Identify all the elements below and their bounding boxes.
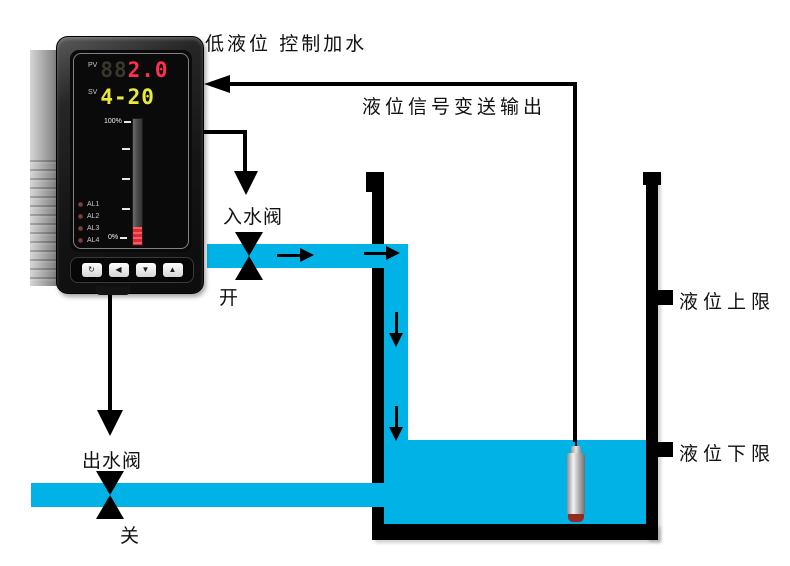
controller-bottom-tab <box>96 286 130 295</box>
upper-limit-marker <box>656 290 673 305</box>
alarm-led-row: AL4 <box>78 234 99 246</box>
pv-ghost-digits: 88 <box>100 60 127 81</box>
sv-label: SV <box>88 89 97 96</box>
level-control-diagram: 低液位 控制加水 液位信号变送输出 入水阀 开 出水阀 关 液位上限 液位下限 … <box>0 0 790 566</box>
inlet-flow-arrow-line <box>277 254 301 257</box>
bargraph-track <box>132 118 143 246</box>
lower-limit-label: 液位下限 <box>679 439 775 466</box>
bar-tick-50 <box>122 178 130 180</box>
inlet-valve-icon-top <box>235 232 263 256</box>
inlet-flow-arrow2-line <box>364 252 387 255</box>
inlet-flow-arrow-icon <box>300 248 314 262</box>
bar-bottom-label: 0% <box>108 234 118 241</box>
level-sensor-body <box>567 453 585 515</box>
lower-limit-marker <box>656 442 673 457</box>
level-controller: PV 88 2.0 SV 4-20 100% <box>30 36 204 298</box>
alarm-led-row: AL2 <box>78 210 99 222</box>
outlet-valve-icon-top <box>96 471 124 495</box>
outlet-valve-state: 关 <box>120 521 142 548</box>
bar-bottom-tick <box>120 237 127 239</box>
bar-tick-25 <box>122 208 130 210</box>
outlet-control-arrow-icon <box>97 410 123 436</box>
drop-flow-arrow2-line <box>395 406 398 428</box>
controller-face: PV 88 2.0 SV 4-20 100% <box>70 50 192 252</box>
level-sensor-tip <box>568 514 584 522</box>
alarm-led-row: AL1 <box>78 198 99 210</box>
inlet-valve-label: 入水阀 <box>223 202 283 229</box>
al2-led-icon <box>78 214 83 219</box>
al4-led-icon <box>78 238 83 243</box>
controller-bezel: PV 88 2.0 SV 4-20 100% <box>56 36 204 294</box>
tank-right-wall <box>646 172 658 540</box>
signal-line-horizontal <box>226 82 575 86</box>
pv-label: PV <box>88 62 97 69</box>
inlet-flow-arrow2-icon <box>386 246 400 260</box>
up-button: ▲ <box>163 263 183 277</box>
signal-line-vertical <box>573 82 577 442</box>
inlet-valve-icon-bottom <box>235 256 263 280</box>
bar-top-tick <box>124 121 131 123</box>
tank-left-wall-lower <box>372 507 384 524</box>
down-button: ▼ <box>136 263 156 277</box>
al3-led-icon <box>78 226 83 231</box>
drop-flow-arrow1-icon <box>389 333 403 347</box>
bar-top-label-row: 100% <box>104 118 131 125</box>
sv-display: SV 4-20 <box>88 87 155 108</box>
bar-bottom-label-row: 0% <box>108 234 127 241</box>
diagram-title: 低液位 控制加水 <box>205 29 367 56</box>
inlet-control-line-vertical <box>243 130 247 172</box>
al1-led-icon <box>78 202 83 207</box>
outlet-control-line <box>108 293 112 411</box>
tank-left-wall-upper <box>372 172 384 244</box>
al2-label: AL2 <box>87 213 99 220</box>
cycle-button: ↻ <box>82 263 102 277</box>
drop-flow-arrow2-icon <box>389 427 403 441</box>
tank-water <box>384 440 646 524</box>
bar-top-label: 100% <box>104 118 122 125</box>
pv-display: PV 88 2.0 <box>88 60 169 81</box>
bargraph-fill <box>133 227 142 245</box>
al4-label: AL4 <box>87 237 99 244</box>
controller-button-strip: ↻ ◀ ▼ ▲ <box>70 257 194 283</box>
sv-value: 4-20 <box>100 87 155 108</box>
bar-tick-75 <box>122 148 130 150</box>
outlet-valve-icon-bottom <box>96 495 124 519</box>
al1-label: AL1 <box>87 201 99 208</box>
upper-limit-label: 液位上限 <box>679 287 775 314</box>
inlet-control-arrow-icon <box>234 171 258 195</box>
pv-value: 2.0 <box>128 60 169 81</box>
alarm-led-row: AL3 <box>78 222 99 234</box>
outlet-valve-label: 出水阀 <box>82 446 142 473</box>
tank-left-wall-mid <box>372 268 384 483</box>
tank-bottom <box>372 524 658 540</box>
drop-flow-arrow1-line <box>395 312 398 334</box>
left-button: ◀ <box>109 263 129 277</box>
signal-arrow-icon <box>204 75 230 93</box>
outlet-pipe <box>31 483 384 507</box>
alarm-led-block: AL1 AL2 AL3 AL4 <box>78 198 99 246</box>
signal-output-label: 液位信号变送输出 <box>362 92 546 119</box>
inlet-valve-state: 开 <box>219 283 241 310</box>
al3-label: AL3 <box>87 225 99 232</box>
